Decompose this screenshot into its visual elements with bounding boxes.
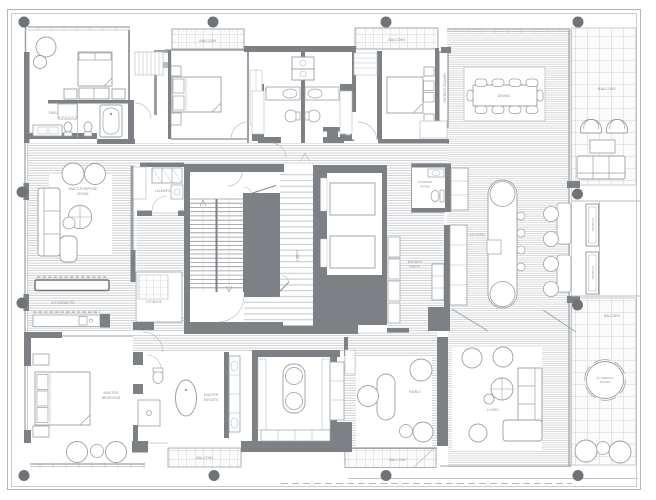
svg-text:PLANTER: PLANTER <box>591 267 595 280</box>
svg-text:BEDROOM: BEDROOM <box>102 396 121 400</box>
svg-text:BALCONY: BALCONY <box>199 39 217 43</box>
svg-text:BUTLER’S: BUTLER’S <box>408 260 423 264</box>
svg-text:FAMILY: FAMILY <box>409 390 422 394</box>
svg-text:LAUNDRY: LAUNDRY <box>155 189 172 193</box>
svg-text:ROOM: ROOM <box>78 192 89 196</box>
svg-text:BALCONY: BALCONY <box>388 38 406 42</box>
svg-text:PANTRY: PANTRY <box>409 265 421 269</box>
svg-text:LIVING: LIVING <box>487 408 499 412</box>
svg-text:KITCHEN: KITCHEN <box>470 233 485 237</box>
svg-text:POWDER: POWDER <box>418 180 432 184</box>
svg-text:HEATING COOLING: HEATING COOLING <box>443 73 447 103</box>
svg-text:ROOM: ROOM <box>420 185 430 189</box>
svg-text:MASTER: MASTER <box>204 393 219 397</box>
svg-text:MASTER: MASTER <box>104 391 119 395</box>
svg-text:ENSUITE: ENSUITE <box>204 398 219 402</box>
svg-text:BALCONY: BALCONY <box>389 458 407 462</box>
svg-text:DINING: DINING <box>498 94 511 98</box>
svg-text:BALCONY: BALCONY <box>604 314 621 318</box>
svg-text:BALCONY: BALCONY <box>598 87 617 91</box>
svg-text:PLANTER: PLANTER <box>591 219 595 232</box>
svg-text:MULTI-PURPOSE: MULTI-PURPOSE <box>69 187 98 191</box>
svg-text:LOBBY: LOBBY <box>295 250 299 262</box>
svg-text:KITCHENETTE: KITCHENETTE <box>51 301 75 305</box>
svg-text:STORAGE: STORAGE <box>146 300 162 304</box>
svg-text:BALCONY: BALCONY <box>196 456 214 460</box>
svg-text:DINING: DINING <box>600 380 611 384</box>
